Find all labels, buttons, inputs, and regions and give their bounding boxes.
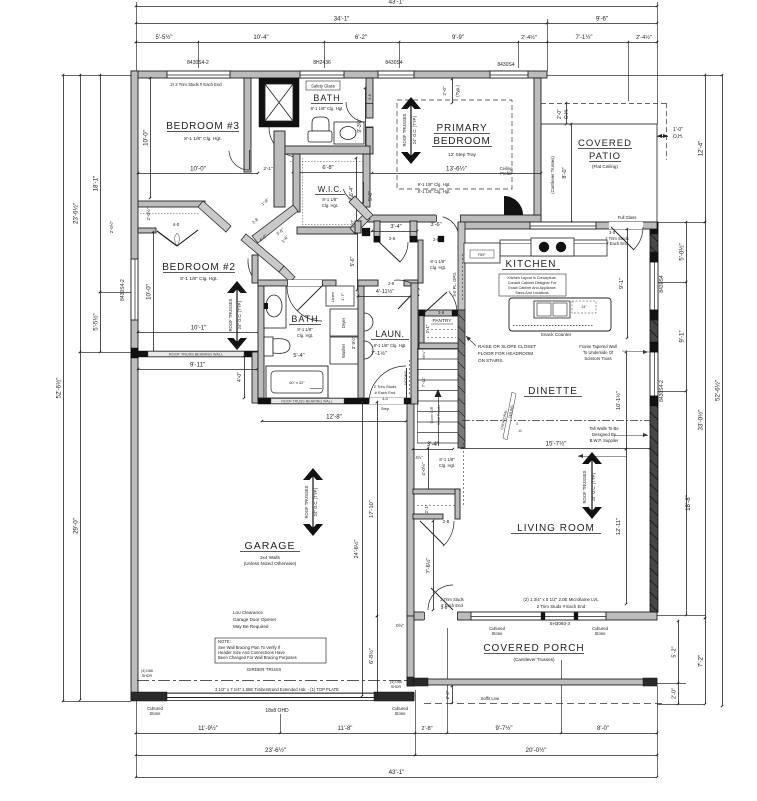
svg-text:(Flat Ceiling): (Flat Ceiling) bbox=[592, 164, 619, 169]
svg-text:36¼": 36¼" bbox=[421, 350, 426, 360]
svg-text:11'-9½": 11'-9½" bbox=[198, 725, 218, 732]
svg-text:3'-4": 3'-4" bbox=[390, 224, 401, 230]
svg-text:2-8: 2-8 bbox=[389, 236, 396, 241]
svg-text:0½": 0½" bbox=[396, 622, 404, 628]
svg-text:8H2436: 8H2436 bbox=[313, 60, 331, 66]
svg-text:GARAGE: GARAGE bbox=[245, 540, 296, 552]
svg-text:Clg. Hgt.: Clg. Hgt. bbox=[439, 463, 455, 468]
svg-text:LIVING ROOM: LIVING ROOM bbox=[517, 523, 595, 534]
svg-text:Garage Door Opener: Garage Door Opener bbox=[233, 617, 277, 622]
svg-text:3'-9½": 3'-9½" bbox=[351, 336, 356, 349]
svg-text:12'-11": 12'-11" bbox=[616, 518, 622, 535]
svg-text:2-6: 2-6 bbox=[367, 93, 372, 100]
svg-text:Clg. Hgt.: Clg. Hgt. bbox=[297, 333, 313, 338]
svg-text:8430S4-2: 8430S4-2 bbox=[659, 380, 665, 402]
svg-text:24" O.C. (TYP.): 24" O.C. (TYP.) bbox=[591, 472, 596, 501]
svg-text:8'-0": 8'-0" bbox=[562, 167, 568, 178]
svg-text:8'-1 1/8" Clg. Hgt.: 8'-1 1/8" Clg. Hgt. bbox=[374, 343, 407, 348]
svg-text:O.H.: O.H. bbox=[564, 109, 570, 119]
svg-text:15'-7½": 15'-7½" bbox=[546, 441, 567, 448]
svg-text:33'-0½": 33'-0½" bbox=[698, 410, 705, 431]
svg-text:ROOF TRUSSES: ROOF TRUSSES bbox=[402, 113, 407, 146]
svg-text:Stone: Stone bbox=[150, 711, 162, 716]
svg-text:7'-2": 7'-2" bbox=[698, 655, 705, 667]
svg-text:5H3060-3: 5H3060-3 bbox=[550, 621, 571, 626]
svg-text:FLOOR FOR HEADROOM: FLOOR FOR HEADROOM bbox=[478, 351, 533, 356]
svg-text:3-0: 3-0 bbox=[382, 396, 389, 401]
svg-text:Down 14R: Down 14R bbox=[430, 406, 434, 423]
svg-text:ROOF TRUSS BEARING WALL: ROOF TRUSS BEARING WALL bbox=[169, 353, 223, 357]
svg-text:BEDROOM #2: BEDROOM #2 bbox=[162, 262, 236, 273]
svg-text:GIRDER TRUSS: GIRDER TRUSS bbox=[247, 667, 282, 672]
svg-text:ROOF TRUSSES: ROOF TRUSSES bbox=[304, 485, 309, 518]
svg-text:7'-6½": 7'-6½" bbox=[425, 558, 432, 574]
svg-text:24" O.C. (TYP.): 24" O.C. (TYP.) bbox=[237, 300, 242, 329]
svg-text:10'-0": 10'-0" bbox=[146, 284, 153, 300]
svg-text:2 Trim Studs # Each End: 2 Trim Studs # Each End bbox=[537, 604, 586, 609]
svg-text:3-0: 3-0 bbox=[441, 605, 448, 610]
svg-text:SHDR: SHDR bbox=[391, 685, 402, 689]
svg-text:Lou Clearance: Lou Clearance bbox=[233, 610, 263, 615]
svg-text:ON STAIRS.: ON STAIRS. bbox=[478, 358, 504, 363]
svg-text:23'-6½": 23'-6½" bbox=[265, 747, 286, 754]
svg-text:2 Trim Studs: 2 Trim Studs bbox=[440, 597, 464, 602]
svg-text:8'-1 1/8" Clg. Hgt.: 8'-1 1/8" Clg. Hgt. bbox=[418, 189, 451, 194]
svg-text:2 Trim Studs: 2 Trim Studs bbox=[374, 384, 396, 389]
svg-text:10'-0": 10'-0" bbox=[190, 166, 206, 173]
svg-text:COVERED: COVERED bbox=[578, 138, 632, 149]
svg-text:5'-5½": 5'-5½" bbox=[156, 34, 173, 41]
svg-text:6'-2": 6'-2" bbox=[355, 35, 367, 41]
svg-text:7'-1½": 7'-1½" bbox=[371, 350, 387, 357]
svg-text:(Cantilever Trusses): (Cantilever Trusses) bbox=[513, 657, 555, 662]
svg-text:6'-8½": 6'-8½" bbox=[368, 648, 375, 664]
svg-text:Snack Counter: Snack Counter bbox=[541, 332, 572, 337]
svg-text:8'-1 1/8" Clg. Hgt.: 8'-1 1/8" Clg. Hgt. bbox=[311, 106, 344, 111]
svg-text:Stone: Stone bbox=[492, 631, 504, 636]
svg-text:Scissors Truss: Scissors Truss bbox=[584, 356, 611, 361]
svg-text:Washer: Washer bbox=[341, 343, 346, 358]
svg-text:4'-0½": 4'-0½" bbox=[420, 462, 427, 476]
svg-text:Safety Glass: Safety Glass bbox=[311, 84, 335, 89]
svg-text:May Be Required: May Be Required bbox=[233, 624, 269, 629]
svg-text:60" x 32": 60" x 32" bbox=[289, 381, 305, 385]
svg-text:Dryer: Dryer bbox=[341, 317, 346, 328]
svg-text:(Unless Noted Otherwise): (Unless Noted Otherwise) bbox=[244, 561, 297, 566]
svg-text:9'-3½": 9'-3½" bbox=[356, 118, 363, 132]
svg-text:Clg. Hgt.: Clg. Hgt. bbox=[430, 265, 446, 270]
svg-text:34'-1": 34'-1" bbox=[334, 16, 350, 23]
svg-text:29'-0": 29'-0" bbox=[73, 518, 80, 534]
svg-text:5'-5½": 5'-5½" bbox=[93, 313, 100, 330]
svg-text:BATH: BATH bbox=[313, 93, 340, 103]
svg-text:BATH: BATH bbox=[291, 314, 318, 324]
svg-text:10'-1½": 10'-1½" bbox=[615, 391, 622, 410]
svg-text:2'-1": 2'-1" bbox=[425, 324, 430, 333]
svg-text:4'-11½": 4'-11½" bbox=[376, 288, 395, 295]
svg-text:12'-8": 12'-8" bbox=[326, 414, 342, 421]
svg-text:12'-4": 12'-4" bbox=[698, 141, 705, 157]
svg-text:Frame Tapered Wall: Frame Tapered Wall bbox=[579, 344, 617, 349]
svg-text:(Cantilever Trusses): (Cantilever Trusses) bbox=[550, 156, 555, 194]
svg-text:3-0 PL. OPG.: 3-0 PL. OPG. bbox=[452, 271, 457, 296]
svg-text:SHDR: SHDR bbox=[142, 674, 153, 678]
svg-text:(2) 1 3/4" x 5 1/2" 2.0E Micr: (2) 1 3/4" x 5 1/2" 2.0E Microllame LVL bbox=[523, 597, 599, 602]
svg-text:5'-2": 5'-2" bbox=[672, 646, 678, 657]
svg-text:Step: Step bbox=[381, 406, 390, 411]
svg-text:BEDROOM #3: BEDROOM #3 bbox=[166, 121, 240, 132]
svg-text:Profile: Profile bbox=[500, 171, 513, 176]
svg-text:2x4 Walls: 2x4 Walls bbox=[260, 555, 280, 560]
svg-text:8'-0": 8'-0" bbox=[597, 726, 609, 732]
svg-text:(4) D86: (4) D86 bbox=[141, 669, 153, 673]
svg-text:(4) D86: (4) D86 bbox=[390, 680, 402, 684]
svg-text:ROOF TRUSSES: ROOF TRUSSES bbox=[228, 298, 233, 331]
svg-text:3'-6": 3'-6" bbox=[430, 222, 441, 228]
svg-text:Tall Walls To Be: Tall Walls To Be bbox=[589, 426, 619, 431]
svg-text:52'-6½": 52'-6½" bbox=[56, 378, 63, 399]
svg-text:8'-1 1/8" Clg. Hgt.: 8'-1 1/8" Clg. Hgt. bbox=[184, 136, 222, 142]
svg-text:2'-4½": 2'-4½" bbox=[521, 34, 537, 41]
svg-text:DINETTE: DINETTE bbox=[528, 386, 578, 397]
svg-text:PATIO: PATIO bbox=[589, 151, 621, 162]
svg-text:COVERED PORCH: COVERED PORCH bbox=[483, 643, 584, 654]
svg-text:2'-0": 2'-0" bbox=[445, 690, 450, 699]
svg-text:ROOF TRUSSES: ROOF TRUSSES bbox=[582, 470, 587, 503]
svg-text:52'-6½": 52'-6½" bbox=[715, 380, 722, 401]
svg-text:Clg. Hgt.: Clg. Hgt. bbox=[322, 203, 338, 208]
svg-text:Stone: Stone bbox=[395, 711, 407, 716]
svg-text:9'-1": 9'-1" bbox=[619, 278, 625, 289]
svg-text:7'-11": 7'-11" bbox=[421, 376, 426, 387]
svg-text:REF: REF bbox=[478, 253, 486, 257]
svg-text:Sizes And Locations: Sizes And Locations bbox=[515, 291, 548, 295]
svg-text:18x8 OHD: 18x8 OHD bbox=[265, 708, 289, 714]
svg-text:Designed By: Designed By bbox=[592, 432, 617, 437]
svg-text:8430S4: 8430S4 bbox=[659, 275, 665, 292]
svg-text:ROOF TRUSS BEARING WALL: ROOF TRUSS BEARING WALL bbox=[281, 400, 332, 404]
svg-text:RAISE OR SLOPE CLOSET: RAISE OR SLOPE CLOSET bbox=[478, 344, 536, 349]
svg-text:43'-1": 43'-1" bbox=[389, 0, 405, 6]
svg-text:4-0: 4-0 bbox=[173, 222, 180, 227]
svg-text:18'-1": 18'-1" bbox=[93, 176, 100, 192]
svg-text:2'-0½": 2'-0½" bbox=[109, 220, 114, 233]
svg-text:8'-1 1/8" Clg. Hgt.: 8'-1 1/8" Clg. Hgt. bbox=[180, 276, 218, 282]
svg-text:8'-1 1/8": 8'-1 1/8" bbox=[297, 327, 313, 332]
svg-text:2-8: 2-8 bbox=[433, 237, 440, 242]
svg-text:BEDROOM: BEDROOM bbox=[433, 136, 490, 147]
svg-text:10'-4": 10'-4" bbox=[253, 35, 268, 41]
svg-text:# Each End: # Each End bbox=[375, 390, 396, 395]
svg-text:KITCHEN: KITCHEN bbox=[506, 259, 557, 270]
svg-text:Full Glass: Full Glass bbox=[618, 215, 637, 220]
svg-text:2-8: 2-8 bbox=[388, 281, 395, 286]
svg-text:12' Step Tray: 12' Step Tray bbox=[448, 152, 477, 158]
svg-text:8'-1 1/8": 8'-1 1/8" bbox=[322, 197, 338, 202]
svg-text:HOOKS: HOOKS bbox=[404, 371, 408, 385]
svg-text:24'-6½": 24'-6½" bbox=[353, 540, 360, 559]
svg-text:1'-7": 1'-7" bbox=[340, 292, 345, 301]
svg-text:4½": 4½" bbox=[415, 455, 423, 460]
svg-text:Been Changed For Wall Bracing: Been Changed For Wall Bracing Purposes bbox=[218, 655, 297, 660]
svg-text:2'-4½": 2'-4½" bbox=[636, 34, 652, 41]
svg-text:11'-8": 11'-8" bbox=[338, 726, 353, 732]
svg-text:2'-0": 2'-0" bbox=[557, 109, 563, 119]
svg-text:LAUN.: LAUN. bbox=[375, 329, 404, 339]
svg-text:2r 2 Trim Studs # Each End: 2r 2 Trim Studs # Each End bbox=[170, 82, 222, 87]
svg-text:3 1/2" x 7 1/4" 1.55E Timberst: 3 1/2" x 7 1/4" 1.55E Timberstrand Exten… bbox=[215, 687, 339, 692]
svg-text:24" O.C. (TYP.): 24" O.C. (TYP.) bbox=[412, 115, 417, 144]
svg-text:# Each End: # Each End bbox=[606, 241, 628, 246]
svg-text:20'-0½": 20'-0½" bbox=[526, 747, 547, 754]
svg-text:23'-6½": 23'-6½" bbox=[73, 203, 80, 224]
svg-text:8430S4: 8430S4 bbox=[497, 62, 514, 68]
svg-text:PANTRY: PANTRY bbox=[432, 318, 452, 324]
svg-text:Exact Cabinet And Appliance: Exact Cabinet And Appliance bbox=[508, 286, 555, 290]
svg-text:17'-10": 17'-10" bbox=[369, 500, 375, 517]
svg-text:10'-1": 10'-1" bbox=[191, 325, 207, 332]
svg-text:5'-6": 5'-6" bbox=[368, 191, 374, 201]
svg-text:2'-0": 2'-0" bbox=[672, 688, 678, 699]
svg-text:O.H.: O.H. bbox=[673, 134, 683, 140]
svg-text:To Underside Of: To Underside Of bbox=[583, 350, 614, 355]
svg-text:9'-6": 9'-6" bbox=[596, 16, 608, 23]
svg-text:5'-6": 5'-6" bbox=[350, 256, 356, 266]
svg-text:(Typ.): (Typ.) bbox=[455, 85, 460, 97]
svg-text:24": 24" bbox=[582, 305, 588, 309]
svg-text:2'-0": 2'-0" bbox=[442, 86, 447, 96]
svg-text:2'-0½": 2'-0½" bbox=[145, 207, 151, 220]
svg-text:8430S4-2: 8430S4-2 bbox=[187, 60, 209, 66]
svg-text:1'-0": 1'-0" bbox=[673, 127, 683, 133]
svg-text:10'-0": 10'-0" bbox=[143, 130, 150, 146]
svg-text:5'-0½": 5'-0½" bbox=[679, 243, 686, 260]
svg-text:9'-1 1/8" Clg. Hgt.: 9'-1 1/8" Clg. Hgt. bbox=[418, 182, 451, 187]
svg-text:2-8: 2-8 bbox=[438, 310, 445, 315]
svg-text:W.I.C.: W.I.C. bbox=[318, 185, 343, 194]
svg-text:B.W.P. Supplier: B.W.P. Supplier bbox=[590, 438, 619, 443]
svg-text:4'-0": 4'-0" bbox=[237, 372, 243, 382]
svg-text:13'-6½": 13'-6½" bbox=[446, 166, 467, 173]
svg-text:43'-1": 43'-1" bbox=[389, 769, 405, 776]
svg-text:2'-1": 2'-1" bbox=[263, 166, 273, 171]
svg-text:NOTE:: NOTE: bbox=[218, 639, 231, 644]
svg-text:24" O.C. (TYP.): 24" O.C. (TYP.) bbox=[313, 487, 318, 516]
svg-text:9'-9": 9'-9" bbox=[452, 35, 464, 41]
svg-text:18'-8": 18'-8" bbox=[685, 495, 692, 511]
svg-text:7'-1½": 7'-1½" bbox=[576, 34, 593, 41]
svg-text:2-8: 2-8 bbox=[443, 519, 450, 524]
svg-text:Kitchen Layout Is Conceptual.: Kitchen Layout Is Conceptual. bbox=[508, 276, 557, 280]
svg-text:9'-1": 9'-1" bbox=[679, 330, 686, 342]
svg-text:3 1/2 Treads: 3 1/2 Treads bbox=[437, 405, 441, 425]
svg-text:12: 12 bbox=[518, 429, 522, 433]
svg-text:8430S4-2: 8430S4-2 bbox=[120, 279, 126, 301]
svg-text:6'-8": 6'-8" bbox=[322, 165, 333, 171]
svg-text:3-0: 3-0 bbox=[609, 230, 616, 235]
svg-text:3: 3 bbox=[516, 422, 518, 426]
svg-text:2'-8": 2'-8" bbox=[421, 726, 432, 732]
svg-text:5'-4": 5'-4" bbox=[293, 353, 304, 359]
svg-text:Soffit Line: Soffit Line bbox=[481, 696, 500, 701]
svg-text:Linen: Linen bbox=[330, 292, 335, 302]
svg-text:Consult Cabinet Designer For: Consult Cabinet Designer For bbox=[508, 281, 557, 285]
svg-text:2'-1": 2'-1" bbox=[424, 504, 429, 513]
svg-text:8'-1 1/8": 8'-1 1/8" bbox=[430, 259, 446, 264]
svg-text:8'-1 1/8": 8'-1 1/8" bbox=[439, 457, 455, 462]
svg-text:1'-0": 1'-0" bbox=[350, 219, 355, 228]
svg-text:9'-11": 9'-11" bbox=[190, 362, 205, 369]
svg-text:PRIMARY: PRIMARY bbox=[437, 123, 488, 134]
svg-text:8430S4: 8430S4 bbox=[385, 60, 402, 66]
svg-text:Stone: Stone bbox=[595, 631, 607, 636]
svg-text:9'-7½": 9'-7½" bbox=[496, 725, 513, 732]
